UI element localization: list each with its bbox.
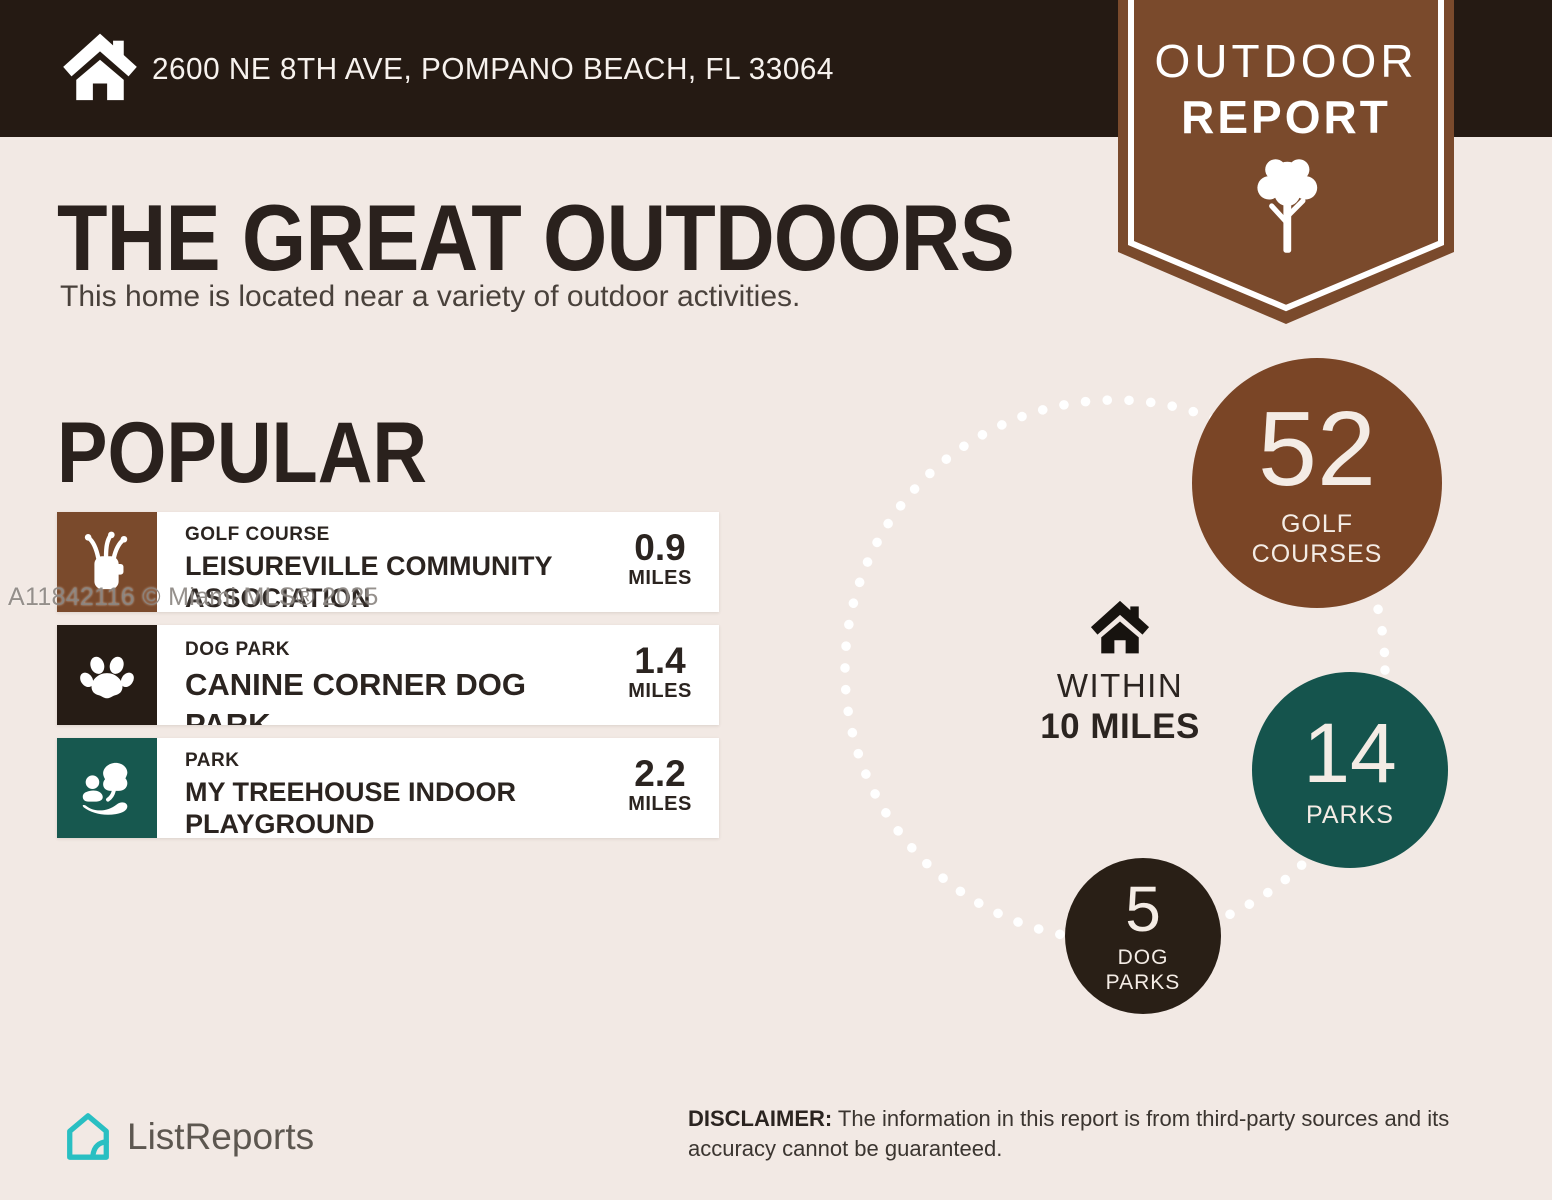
distance: 1.4 MILES (601, 625, 719, 725)
ribbon-content: OUTDOOR REPORT (1118, 34, 1454, 263)
stat-value: 5 (1125, 877, 1161, 941)
distance-unit: MILES (601, 680, 719, 703)
stat-label-line2: COURSES (1252, 539, 1383, 569)
tree-icon (1244, 154, 1328, 258)
page-title: THE GREAT OUTDOORS (57, 184, 1014, 292)
playground-icon (76, 757, 138, 819)
list-item-text: DOG PARK CANINE CORNER DOG PARK (157, 625, 601, 725)
disclaimer-text: DISCLAIMER: The information in this repo… (688, 1104, 1518, 1164)
category-label: PARK (185, 750, 601, 772)
stat-circle-parks: 14 PARKS (1252, 672, 1448, 868)
list-item-dog-park: DOG PARK CANINE CORNER DOG PARK 1.4 MILE… (57, 625, 719, 725)
radius-within-label: WITHIN (995, 667, 1245, 705)
distance: 0.9 MILES (601, 512, 719, 612)
distance-value: 2.2 (601, 755, 719, 793)
outdoor-report-ribbon: OUTDOOR REPORT (1118, 0, 1454, 326)
disclaimer-label: DISCLAIMER: (688, 1106, 832, 1131)
popular-heading: POPULAR (57, 404, 427, 503)
stat-value: 14 (1303, 710, 1396, 796)
place-name: CANINE CORNER DOG PARK (185, 665, 601, 725)
home-icon (62, 26, 138, 110)
listreports-logo-icon (63, 1110, 113, 1164)
stat-label-line1: PARKS (1306, 800, 1394, 830)
mls-watermark: A11842116 © Miami MLS® 2025 (8, 583, 379, 612)
distance-value: 1.4 (601, 642, 719, 680)
radius-label: WITHIN 10 MILES (995, 598, 1245, 747)
park-category-tile (57, 738, 157, 838)
paw-icon (76, 644, 138, 706)
category-label: GOLF COURSE (185, 524, 601, 546)
category-label: DOG PARK (185, 639, 601, 661)
popular-places-list: GOLF COURSE LEISUREVILLE COMMUNITY ASSOC… (57, 512, 719, 851)
property-address: 2600 NE 8TH AVE, POMPANO BEACH, FL 33064 (152, 0, 834, 137)
radius-miles-label: 10 MILES (995, 707, 1245, 747)
stat-label-line2: PARKS (1106, 970, 1181, 995)
distance: 2.2 MILES (601, 738, 719, 838)
stat-label-line1: GOLF (1281, 509, 1353, 539)
outdoor-report-page: 2600 NE 8TH AVE, POMPANO BEACH, FL 33064… (0, 0, 1552, 1200)
distance-unit: MILES (601, 793, 719, 816)
stat-circle-golf-courses: 52 GOLF COURSES (1192, 358, 1442, 608)
listreports-brand: ListReports (63, 1110, 314, 1164)
stat-circle-dog-parks: 5 DOG PARKS (1065, 858, 1221, 1014)
page-subtitle: This home is located near a variety of o… (60, 280, 800, 314)
distance-unit: MILES (601, 567, 719, 590)
brand-name: ListReports (127, 1116, 314, 1158)
home-center-icon (1088, 598, 1152, 658)
list-item-text: PARK MY TREEHOUSE INDOOR PLAYGROUND (157, 738, 601, 838)
ribbon-title-line1: OUTDOOR (1118, 34, 1454, 88)
ribbon-title-line2: REPORT (1118, 90, 1454, 144)
place-name: MY TREEHOUSE INDOOR PLAYGROUND (185, 776, 601, 838)
stat-label-line1: DOG (1118, 945, 1169, 970)
dog-category-tile (57, 625, 157, 725)
list-item-park: PARK MY TREEHOUSE INDOOR PLAYGROUND 2.2 … (57, 738, 719, 838)
stat-value: 52 (1258, 397, 1376, 501)
distance-value: 0.9 (601, 529, 719, 567)
